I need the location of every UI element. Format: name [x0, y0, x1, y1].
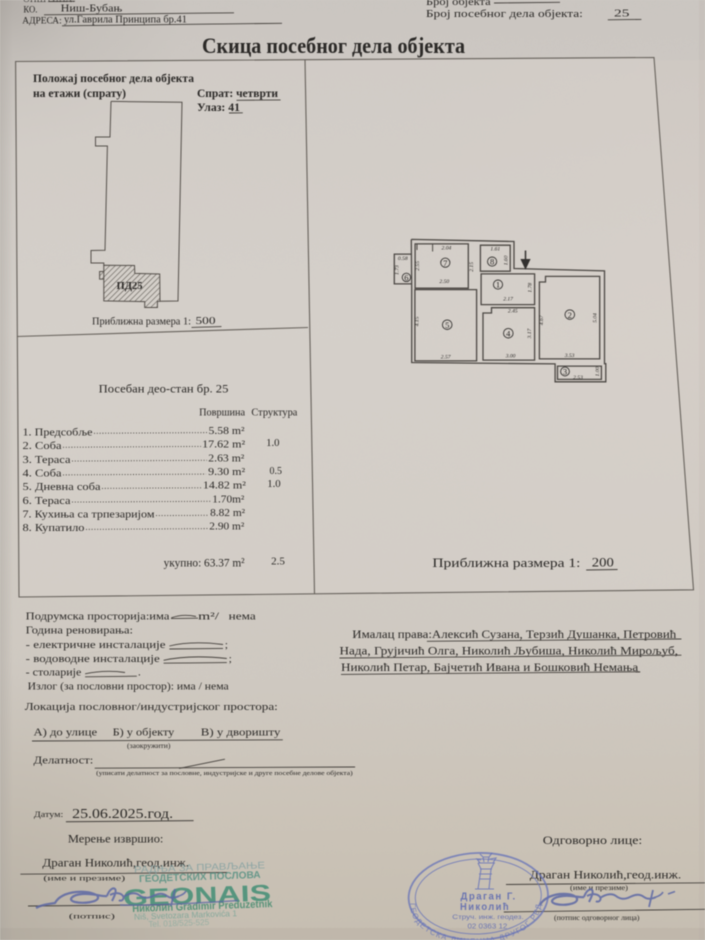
svg-text:Број посебног дела објекта:: Број посебног дела објекта: — [426, 9, 583, 20]
svg-text:2.45: 2.45 — [508, 308, 518, 314]
svg-text:0.58: 0.58 — [398, 256, 408, 262]
svg-text:1.61: 1.61 — [490, 247, 500, 253]
svg-text:1.78: 1.78 — [528, 283, 534, 293]
svg-text:3.17: 3.17 — [527, 329, 533, 340]
svg-text:Драган Г.: Драган Г. — [461, 892, 517, 903]
svg-text:2.15: 2.15 — [469, 262, 475, 272]
svg-text:(уписати делатност за пословне: (уписати делатност за пословне, индустри… — [96, 770, 353, 777]
svg-text:- столарије: - столарије — [26, 667, 82, 679]
svg-text:на етажи (спрату): на етажи (спрату) — [33, 88, 126, 100]
svg-text:6: 6 — [404, 272, 408, 282]
svg-text:АДРЕСА:: АДРЕСА: — [22, 16, 61, 26]
svg-text:Приближна размера 1:: Приближна размера 1: — [432, 556, 580, 570]
svg-text:1.70m²: 1.70m² — [212, 493, 245, 505]
svg-text:6. Тераса: 6. Тераса — [23, 495, 71, 507]
svg-text:Драган Николић,геод.инж.: Драган Николић,геод.инж. — [530, 869, 682, 881]
svg-text:3.00: 3.00 — [505, 353, 516, 359]
svg-text:Приближна размера 1:: Приближна размера 1: — [92, 317, 191, 328]
svg-text:5. Дневна соба: 5. Дневна соба — [23, 481, 101, 493]
svg-text:2. Соба: 2. Соба — [23, 440, 62, 452]
svg-text:(име и презиме): (име и презиме) — [570, 884, 629, 892]
svg-text:2.53: 2.53 — [573, 375, 583, 381]
svg-text:нема: нема — [229, 611, 256, 623]
svg-text:8: 8 — [490, 257, 494, 267]
svg-text:2.63 m²: 2.63 m² — [208, 452, 245, 464]
svg-text:m²/: m²/ — [198, 611, 220, 623]
svg-text:1.00: 1.00 — [595, 367, 601, 377]
svg-text:Одговорно лице:: Одговорно лице: — [543, 835, 643, 847]
svg-text:Број објекта: Број објекта — [426, 0, 491, 8]
svg-text:Струч. инж. геодез.: Струч. инж. геодез. — [452, 914, 524, 921]
svg-text:200: 200 — [592, 556, 614, 570]
svg-text:5: 5 — [445, 320, 449, 330]
svg-text:Скица посебног дела објекта: Скица посебног дела објекта — [202, 33, 465, 58]
svg-text:25.06.2025.год.: 25.06.2025.год. — [72, 806, 173, 821]
svg-text:8. Купатило: 8. Купатило — [23, 522, 86, 534]
svg-text:1. Предсобље: 1. Предсобље — [23, 426, 93, 438]
svg-text:Структура: Структура — [251, 407, 297, 418]
svg-text:2.04: 2.04 — [442, 246, 452, 252]
svg-text:Б) у објекту: Б) у објекту — [113, 727, 175, 739]
svg-text:3: 3 — [563, 367, 567, 377]
svg-text:2.17: 2.17 — [503, 297, 513, 303]
svg-text:Делатност:: Делатност: — [34, 755, 94, 767]
svg-text:5.58 m²: 5.58 m² — [209, 425, 246, 437]
svg-text:2.55: 2.55 — [415, 261, 421, 271]
svg-text:9.30 m²: 9.30 m² — [208, 466, 246, 478]
svg-text:(име и презиме): (име и презиме) — [43, 874, 125, 883]
svg-text:4.67: 4.67 — [539, 315, 545, 325]
svg-text:2.57: 2.57 — [441, 354, 451, 360]
svg-text:Tel. 018/525-525: Tel. 018/525-525 — [148, 917, 209, 929]
svg-text:Подрумска просторија:има: Подрумска просторија:има — [26, 611, 170, 623]
svg-text:1.0: 1.0 — [267, 478, 281, 490]
svg-text:Николић: Николић — [460, 901, 510, 913]
svg-text:;: ; — [225, 639, 228, 651]
svg-text:7: 7 — [443, 258, 447, 268]
svg-text:7. Кухиња са трпезаријом: 7. Кухиња са трпезаријом — [23, 508, 155, 520]
svg-text:14.82 m²: 14.82 m² — [203, 480, 247, 492]
svg-text:Датум:: Датум: — [34, 809, 63, 819]
svg-text:- водоводне инсталације: - водоводне инсталације — [26, 653, 160, 665]
svg-text:2.90 m²: 2.90 m² — [209, 521, 245, 533]
svg-text:Положај посебног дела објекта: Положај посебног дела објекта — [33, 73, 194, 85]
svg-text:.: . — [138, 667, 141, 679]
svg-text:1.0: 1.0 — [266, 437, 280, 449]
svg-text:Површина: Површина — [199, 408, 245, 419]
svg-text:2.5: 2.5 — [271, 556, 285, 568]
svg-text:Ниш-Бубањ: Ниш-Бубањ — [61, 3, 123, 14]
svg-text:ул.Гаврила Принципа бр.41: ул.Гаврила Принципа бр.41 — [64, 14, 187, 25]
svg-text:3. Тераса: 3. Тераса — [23, 454, 71, 466]
svg-text:Мерење извршио:: Мерење извршио: — [68, 834, 163, 846]
svg-text:(потпис): (потпис) — [69, 912, 116, 921]
svg-text:4.15: 4.15 — [414, 316, 420, 326]
svg-text:В) у дворишту: В) у дворишту — [201, 727, 281, 739]
svg-text:;: ; — [229, 653, 232, 665]
svg-text:4: 4 — [506, 328, 511, 338]
svg-text:2: 2 — [568, 310, 572, 320]
svg-text:25: 25 — [614, 7, 630, 19]
svg-text:Спрат: четврти: Спрат: четврти — [197, 88, 278, 100]
svg-text:ПД25: ПД25 — [117, 281, 143, 292]
svg-text:1: 1 — [496, 280, 500, 290]
svg-text:1.60: 1.60 — [504, 255, 510, 265]
svg-text:2.50: 2.50 — [439, 279, 449, 285]
svg-text:Локација пословног/индустријск: Локација пословног/индустријског простор… — [25, 701, 278, 713]
svg-text:8.82 m²: 8.82 m² — [210, 507, 246, 519]
svg-text:3.53: 3.53 — [564, 353, 575, 359]
svg-text:02 0363 12: 02 0363 12 — [468, 922, 508, 931]
svg-text:А) до улице: А) до улице — [34, 727, 98, 739]
svg-text:(потпис одговорног лица): (потпис одговорног лица) — [554, 914, 640, 922]
svg-text:5.04: 5.04 — [592, 313, 598, 323]
svg-text:укупно: 63.37 m²: укупно: 63.37 m² — [164, 556, 245, 570]
svg-text:- електричне инсталације: - електричне инсталације — [26, 639, 166, 651]
svg-text:4. Соба: 4. Соба — [23, 468, 62, 480]
svg-text:1.73: 1.73 — [395, 265, 401, 275]
svg-text:Излог (за пословни простор): и: Излог (за пословни простор): има / нема — [28, 680, 229, 692]
svg-text:КО.: КО. — [23, 5, 37, 15]
svg-text:17.62 m²: 17.62 m² — [202, 439, 246, 451]
svg-text:Посебан део-стан бр. 25: Посебан део-стан бр. 25 — [99, 384, 229, 396]
svg-text:(заокружити): (заокружити) — [127, 743, 170, 750]
svg-text:0.5: 0.5 — [270, 465, 283, 477]
svg-text:Улаз: 41: Улаз: 41 — [197, 102, 240, 114]
svg-text:Година реновирања:: Година реновирања: — [26, 624, 133, 636]
svg-text:500: 500 — [196, 316, 216, 327]
